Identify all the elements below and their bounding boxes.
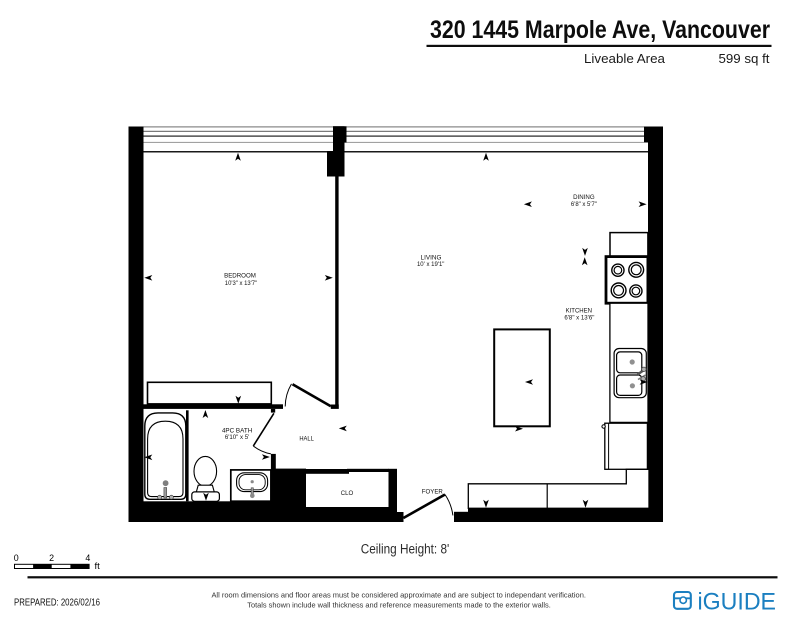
svg-text:HALL: HALL xyxy=(299,436,314,443)
svg-text:Totals shown include wall thic: Totals shown include wall thickness and … xyxy=(247,601,551,610)
svg-text:10' x 19'1": 10' x 19'1" xyxy=(417,261,445,268)
svg-text:CLO: CLO xyxy=(341,490,353,497)
svg-text:2: 2 xyxy=(49,553,54,563)
svg-text:6'8" x 5'7": 6'8" x 5'7" xyxy=(571,201,597,208)
svg-text:6'10" x 5': 6'10" x 5' xyxy=(225,434,250,441)
svg-text:iGUIDE: iGUIDE xyxy=(698,588,777,615)
svg-text:All room dimensions and floor: All room dimensions and floor areas must… xyxy=(211,591,586,600)
svg-text:599 sq ft: 599 sq ft xyxy=(719,51,770,66)
svg-text:10'3" x 13'7": 10'3" x 13'7" xyxy=(225,280,257,287)
svg-text:0: 0 xyxy=(14,553,19,563)
svg-text:ft: ft xyxy=(95,561,101,572)
svg-text:320 1445 Marpole Ave, Vancouve: 320 1445 Marpole Ave, Vancouver xyxy=(430,17,770,44)
svg-text:PREPARED: 2026/02/16: PREPARED: 2026/02/16 xyxy=(14,597,100,608)
svg-text:Ceiling Height: 8': Ceiling Height: 8' xyxy=(361,542,450,557)
svg-text:6'8" x 13'6": 6'8" x 13'6" xyxy=(564,314,594,321)
svg-text:FOYER: FOYER xyxy=(422,488,443,495)
svg-text:BEDROOM: BEDROOM xyxy=(224,273,256,280)
svg-text:Liveable Area: Liveable Area xyxy=(584,51,666,66)
svg-text:4: 4 xyxy=(85,553,90,563)
